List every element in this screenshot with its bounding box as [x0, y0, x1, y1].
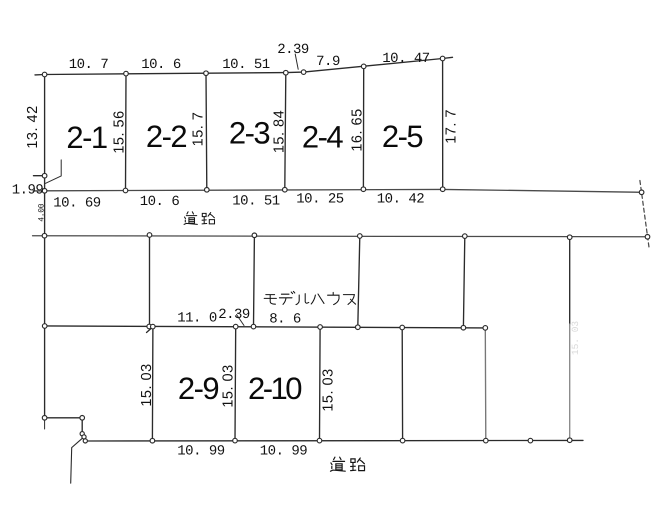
- svg-text:10. 51: 10. 51: [222, 57, 270, 73]
- svg-text:2-1: 2-1: [66, 120, 107, 155]
- svg-text:10. 25: 10. 25: [296, 192, 344, 208]
- svg-text:1.99: 1.99: [12, 183, 44, 199]
- svg-text:16. 65: 16. 65: [350, 108, 366, 151]
- svg-text:13. 42: 13. 42: [25, 105, 41, 148]
- svg-text:8. 6: 8. 6: [269, 312, 301, 328]
- svg-text:15. 84: 15. 84: [272, 110, 288, 153]
- svg-text:4.00: 4.00: [38, 203, 47, 222]
- svg-text:10. 51: 10. 51: [232, 194, 280, 210]
- svg-text:15. 03: 15. 03: [139, 363, 155, 406]
- svg-text:10. 6: 10. 6: [141, 57, 181, 73]
- svg-text:7.9: 7.9: [316, 54, 340, 70]
- svg-text:10. 7: 10. 7: [69, 57, 109, 73]
- svg-text:2-3: 2-3: [229, 116, 270, 151]
- svg-text:10. 69: 10. 69: [53, 196, 101, 212]
- svg-text:2-4: 2-4: [302, 120, 344, 155]
- svg-text:2-10: 2-10: [248, 371, 302, 406]
- svg-text:2.39: 2.39: [218, 307, 250, 323]
- svg-text:15. 03: 15. 03: [321, 368, 337, 411]
- svg-text:10. 47: 10. 47: [382, 51, 430, 67]
- svg-text:10. 99: 10. 99: [260, 444, 308, 460]
- svg-text:2-9: 2-9: [178, 371, 219, 406]
- svg-text:2-2: 2-2: [146, 119, 187, 154]
- svg-text:15. 03: 15. 03: [221, 364, 237, 407]
- svg-text:10. 99: 10. 99: [177, 444, 225, 460]
- svg-text:2-5: 2-5: [382, 119, 423, 154]
- svg-text:15. 56: 15. 56: [112, 110, 128, 153]
- svg-text:10. 42: 10. 42: [377, 192, 425, 208]
- svg-text:10. 6: 10. 6: [140, 194, 180, 210]
- svg-text:15. 7: 15. 7: [191, 112, 207, 147]
- svg-text:15. 03: 15. 03: [570, 321, 581, 356]
- svg-text:11. 0: 11. 0: [177, 311, 217, 327]
- svg-text:17. 7: 17. 7: [443, 109, 459, 144]
- svg-text:2.39: 2.39: [277, 42, 309, 58]
